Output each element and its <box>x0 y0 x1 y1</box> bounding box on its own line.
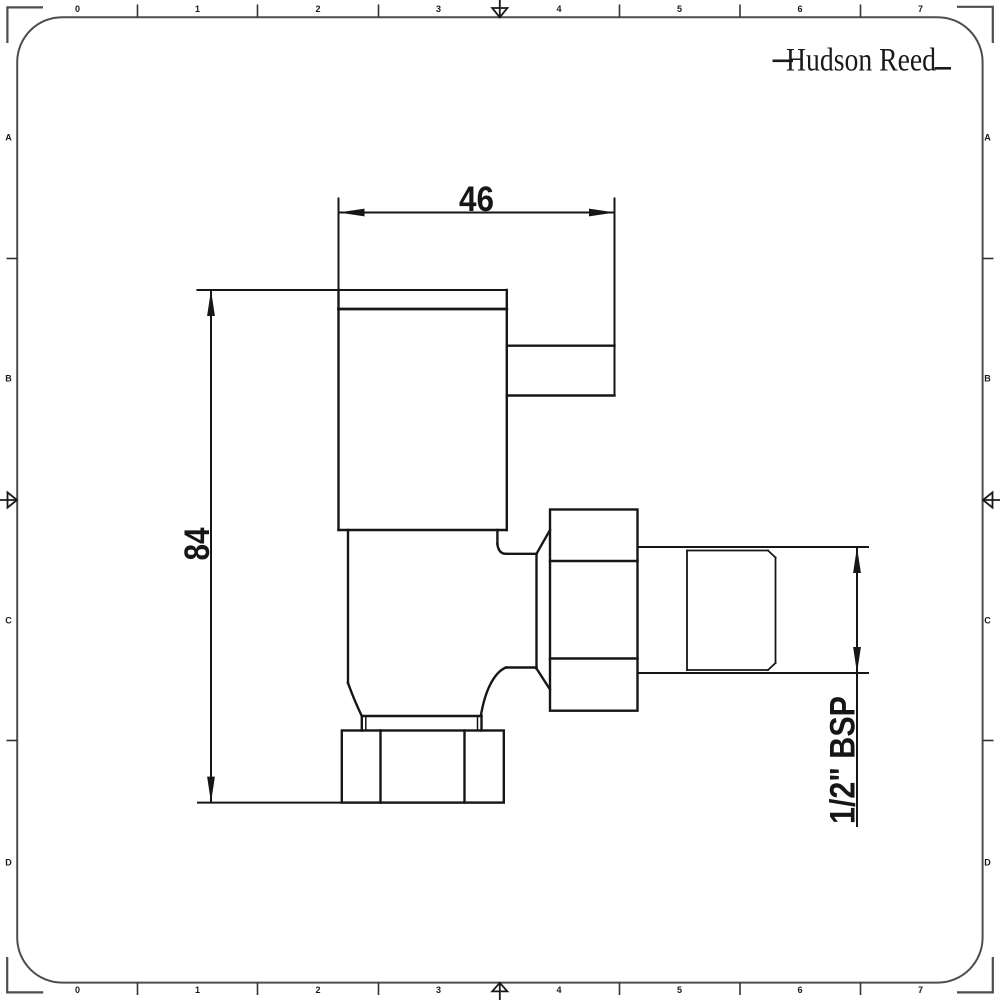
svg-text:5: 5 <box>677 4 682 14</box>
svg-text:3: 3 <box>436 4 441 14</box>
svg-text:B: B <box>984 373 991 383</box>
svg-text:5: 5 <box>677 985 682 995</box>
svg-text:6: 6 <box>797 4 802 14</box>
svg-text:D: D <box>5 857 12 867</box>
svg-text:3: 3 <box>436 985 441 995</box>
svg-text:0: 0 <box>75 985 80 995</box>
svg-text:4: 4 <box>556 985 561 995</box>
svg-text:6: 6 <box>797 985 802 995</box>
svg-text:A: A <box>984 132 991 142</box>
svg-text:84: 84 <box>178 527 217 560</box>
svg-text:1/2" BSP: 1/2" BSP <box>824 696 863 824</box>
svg-text:46: 46 <box>459 180 494 219</box>
svg-text:4: 4 <box>556 4 561 14</box>
svg-text:A: A <box>5 132 12 142</box>
svg-text:C: C <box>984 615 991 625</box>
svg-text:1: 1 <box>195 985 200 995</box>
svg-text:1: 1 <box>195 4 200 14</box>
svg-text:2: 2 <box>315 985 320 995</box>
svg-text:D: D <box>984 857 991 867</box>
svg-text:2: 2 <box>315 4 320 14</box>
svg-text:7: 7 <box>918 985 923 995</box>
svg-text:0: 0 <box>75 4 80 14</box>
svg-text:7: 7 <box>918 4 923 14</box>
svg-text:B: B <box>5 373 12 383</box>
svg-text:C: C <box>5 615 12 625</box>
svg-text:Hudson Reed: Hudson Reed <box>786 43 936 79</box>
